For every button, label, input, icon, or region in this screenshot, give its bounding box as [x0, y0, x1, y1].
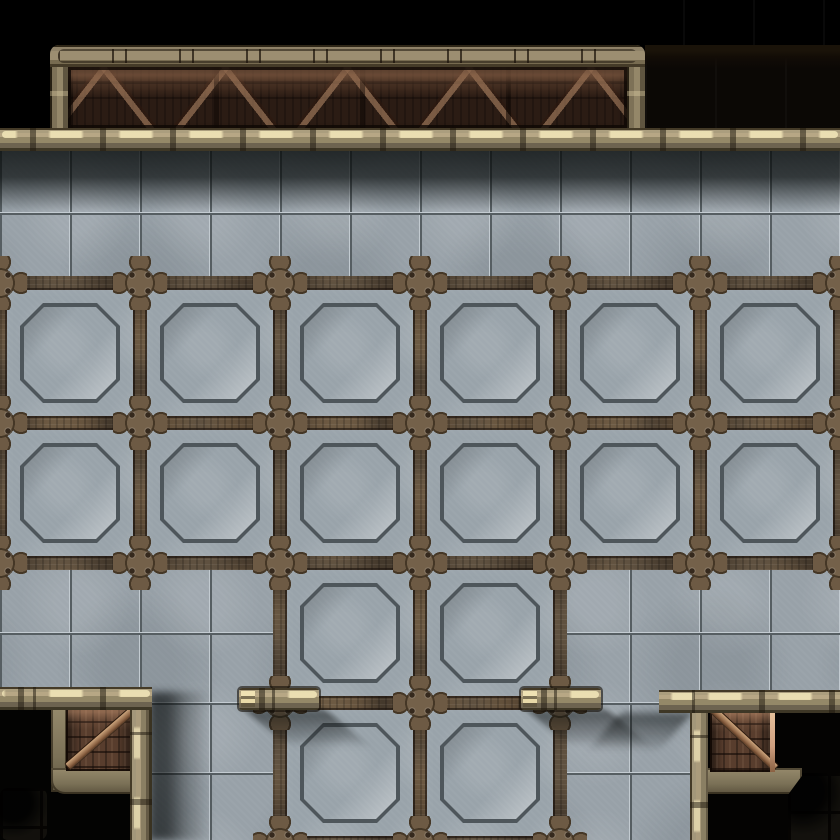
se-door-brace: [709, 705, 779, 772]
panel-octagon-face: [304, 307, 396, 399]
panel-octagon-face: [444, 447, 536, 539]
panel-octagon-groove: [440, 443, 540, 543]
frame-joint-plate: [253, 816, 307, 840]
panel-octagon-groove: [440, 583, 540, 683]
wall-stub-left-cap: [241, 691, 255, 707]
north-wall-ledge: [0, 128, 840, 151]
panel-octagon-groove: [580, 303, 680, 403]
frame-joint-plate: [533, 816, 587, 840]
frame-joint-plate: [113, 396, 167, 450]
panel-octagon-face: [304, 447, 396, 539]
frame-joint-plate: [813, 396, 840, 450]
panel-octagon-face: [584, 307, 676, 399]
panel-octagon-face: [24, 307, 116, 399]
frame-joint-plate: [673, 536, 727, 590]
frame-joint-plate: [533, 396, 587, 450]
frame-joint-plate: [673, 396, 727, 450]
panel-octagon-groove: [720, 443, 820, 543]
panel-octagon-groove: [300, 443, 400, 543]
frame-joint-plate: [393, 676, 447, 730]
panel-octagon-groove: [300, 303, 400, 403]
panel-octagon-face: [444, 727, 536, 819]
panel-octagon-groove: [20, 303, 120, 403]
panel-octagon-face: [444, 307, 536, 399]
map-canvas: [0, 0, 840, 840]
panel-octagon-face: [304, 587, 396, 679]
sw-wall-vertical: [130, 710, 152, 840]
panel-octagon-groove: [580, 443, 680, 543]
se-wall-vertical: [690, 713, 708, 840]
frame-joint-plate: [393, 256, 447, 310]
sw-door-sill: [51, 768, 135, 794]
frame-joint-plate: [813, 536, 840, 590]
catwalk-bridge: [50, 45, 645, 128]
panel-octagon-face: [584, 447, 676, 539]
se-wall-ledge: [659, 690, 840, 713]
frame-joint-plate: [533, 256, 587, 310]
panel-octagon-groove: [20, 443, 120, 543]
frame-joint-plate: [533, 536, 587, 590]
dark-room-top-right: [645, 45, 840, 130]
sw-door[interactable]: [66, 706, 132, 771]
panel-octagon-groove: [160, 443, 260, 543]
bridge-top-rail: [50, 45, 645, 67]
frame-joint-plate: [113, 256, 167, 310]
frame-joint-plate: [0, 536, 27, 590]
north-wall-shadow: [0, 151, 840, 211]
frame-joint-plate: [253, 396, 307, 450]
frame-joint-plate: [253, 536, 307, 590]
panel-octagon-face: [724, 307, 816, 399]
frame-joint-plate: [813, 256, 840, 310]
panel-octagon-groove: [300, 583, 400, 683]
panel-octagon-face: [24, 447, 116, 539]
panel-octagon-groove: [440, 723, 540, 823]
frame-joint-plate: [0, 396, 27, 450]
frame-joint-plate: [393, 536, 447, 590]
frame-joint-plate: [0, 256, 27, 310]
se-door-edge-highlight: [770, 708, 775, 772]
frame-joint-plate: [253, 256, 307, 310]
panel-octagon-face: [444, 587, 536, 679]
panel-octagon-face: [164, 307, 256, 399]
dark-floor-tile-hint-sw: [0, 788, 47, 840]
panel-octagon-face: [724, 447, 816, 539]
frame-joint-plate: [113, 536, 167, 590]
sw-door-brace: [64, 705, 138, 771]
wall-stub-left: [239, 688, 319, 710]
frame-joint-plate: [393, 816, 447, 840]
bridge-braced-window: [68, 67, 627, 128]
se-door[interactable]: [710, 708, 772, 772]
panel-octagon-groove: [720, 303, 820, 403]
wall-stub-right-cap: [523, 691, 537, 707]
wall-stub-right: [521, 688, 601, 710]
frame-joint-plate: [673, 256, 727, 310]
panel-octagon-groove: [440, 303, 540, 403]
frame-joint-plate: [393, 396, 447, 450]
dark-ceiling-grid: [645, 0, 840, 48]
panel-octagon-face: [164, 447, 256, 539]
sw-wall-ledge: [0, 687, 152, 710]
west-wall-shadow: [149, 692, 211, 840]
panel-octagon-groove: [160, 303, 260, 403]
